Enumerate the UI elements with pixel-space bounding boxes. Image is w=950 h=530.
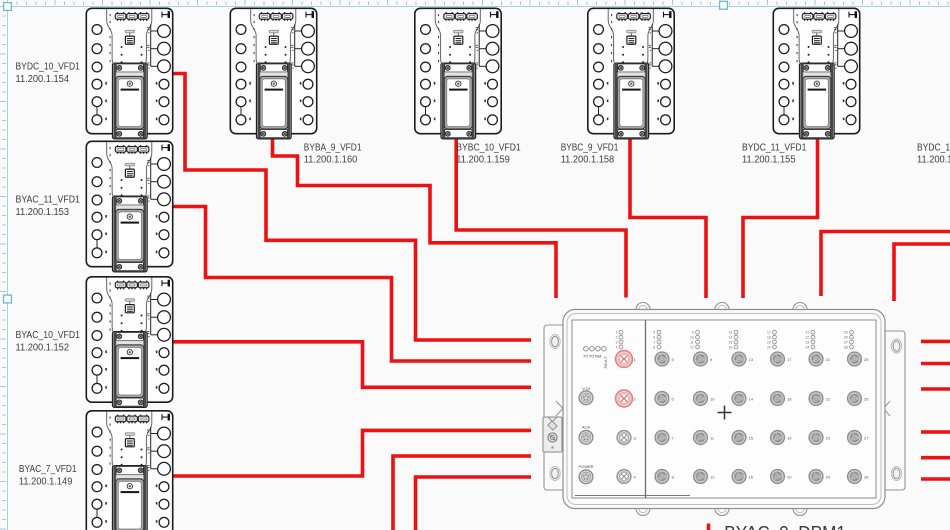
svg-text:24: 24 bbox=[826, 474, 831, 479]
svg-text:20: 20 bbox=[767, 345, 771, 349]
svg-text:20: 20 bbox=[787, 474, 792, 479]
svg-text:11.200.1.155: 11.200.1.155 bbox=[742, 155, 796, 166]
svg-text:BYBA_9_VFD1: BYBA_9_VFD1 bbox=[304, 143, 362, 154]
svg-text:9: 9 bbox=[692, 331, 694, 335]
svg-text:25: 25 bbox=[844, 331, 848, 335]
svg-text:4: 4 bbox=[616, 345, 618, 349]
svg-text:27: 27 bbox=[844, 341, 848, 345]
svg-text:P1: P1 bbox=[583, 354, 589, 359]
svg-text:2: 2 bbox=[616, 336, 618, 340]
svg-text:10: 10 bbox=[690, 336, 694, 340]
svg-text:BYAC_9_DPM1: BYAC_9_DPM1 bbox=[724, 523, 846, 530]
svg-text:13: 13 bbox=[749, 357, 754, 362]
svg-text:25: 25 bbox=[864, 357, 869, 362]
svg-text:23: 23 bbox=[806, 341, 810, 345]
svg-text:BYDC_11_VFD1: BYDC_11_VFD1 bbox=[742, 143, 807, 154]
svg-text:18: 18 bbox=[767, 336, 771, 340]
svg-text:16: 16 bbox=[729, 345, 733, 349]
svg-text:7: 7 bbox=[653, 341, 655, 345]
svg-text:24: 24 bbox=[806, 345, 810, 349]
svg-text:12: 12 bbox=[710, 474, 715, 479]
svg-text:15: 15 bbox=[729, 341, 733, 345]
svg-text:11.200.1.154: 11.200.1.154 bbox=[16, 74, 70, 85]
svg-text:19: 19 bbox=[767, 341, 771, 345]
svg-text:21: 21 bbox=[826, 357, 831, 362]
svg-text:13: 13 bbox=[729, 331, 733, 335]
svg-text:BYAC_11_VFD1: BYAC_11_VFD1 bbox=[16, 195, 81, 206]
svg-text:28: 28 bbox=[864, 474, 869, 479]
svg-text:15: 15 bbox=[749, 435, 754, 440]
svg-text:11.200.1.160: 11.200.1.160 bbox=[304, 155, 358, 166]
svg-text:23: 23 bbox=[826, 435, 831, 440]
svg-text:11.200.1.156: 11.200.1.156 bbox=[917, 155, 950, 166]
svg-text:12: 12 bbox=[690, 345, 694, 349]
svg-text:17: 17 bbox=[767, 331, 771, 335]
svg-text:BYBC_9_VFD1: BYBC_9_VFD1 bbox=[561, 143, 619, 154]
svg-text:22: 22 bbox=[826, 396, 831, 401]
svg-text:5: 5 bbox=[653, 331, 655, 335]
svg-text:19: 19 bbox=[787, 435, 792, 440]
svg-text:11.200.1.153: 11.200.1.153 bbox=[16, 207, 70, 218]
svg-text:22: 22 bbox=[806, 336, 810, 340]
svg-text:16: 16 bbox=[749, 474, 754, 479]
svg-text:11.200.1.158: 11.200.1.158 bbox=[561, 155, 615, 166]
svg-text:8: 8 bbox=[653, 345, 655, 349]
svg-text:14: 14 bbox=[729, 336, 733, 340]
svg-text:26: 26 bbox=[864, 396, 869, 401]
svg-text:11: 11 bbox=[690, 341, 694, 345]
svg-text:6: 6 bbox=[653, 336, 655, 340]
svg-text:21: 21 bbox=[806, 331, 810, 335]
svg-text:27: 27 bbox=[864, 435, 869, 440]
svg-text:26: 26 bbox=[844, 336, 848, 340]
svg-text:3: 3 bbox=[616, 341, 618, 345]
svg-text:1: 1 bbox=[616, 331, 618, 335]
svg-text:11.200.1.149: 11.200.1.149 bbox=[19, 477, 73, 488]
svg-text:11.200.1.159: 11.200.1.159 bbox=[456, 155, 510, 166]
svg-text:RM: RM bbox=[595, 354, 601, 359]
svg-text:BYBC_10_VFD1: BYBC_10_VFD1 bbox=[456, 143, 521, 154]
svg-text:28: 28 bbox=[844, 345, 848, 349]
svg-text:10: 10 bbox=[710, 396, 715, 401]
svg-text:BYDC_12_VFD1: BYDC_12_VFD1 bbox=[917, 143, 950, 154]
svg-text:FAULT: FAULT bbox=[603, 356, 608, 369]
svg-text:BYAC_7_VFD1: BYAC_7_VFD1 bbox=[19, 464, 77, 475]
svg-text:POWER: POWER bbox=[578, 464, 593, 469]
svg-text:BYAC_10_VFD1: BYAC_10_VFD1 bbox=[16, 330, 81, 341]
svg-text:18: 18 bbox=[787, 396, 792, 401]
svg-text:BYDC_10_VFD1: BYDC_10_VFD1 bbox=[16, 62, 81, 73]
svg-text:ACA: ACA bbox=[582, 425, 591, 430]
svg-text:14: 14 bbox=[749, 396, 754, 401]
svg-text:11.200.1.152: 11.200.1.152 bbox=[16, 343, 70, 354]
svg-text:17: 17 bbox=[787, 357, 792, 362]
